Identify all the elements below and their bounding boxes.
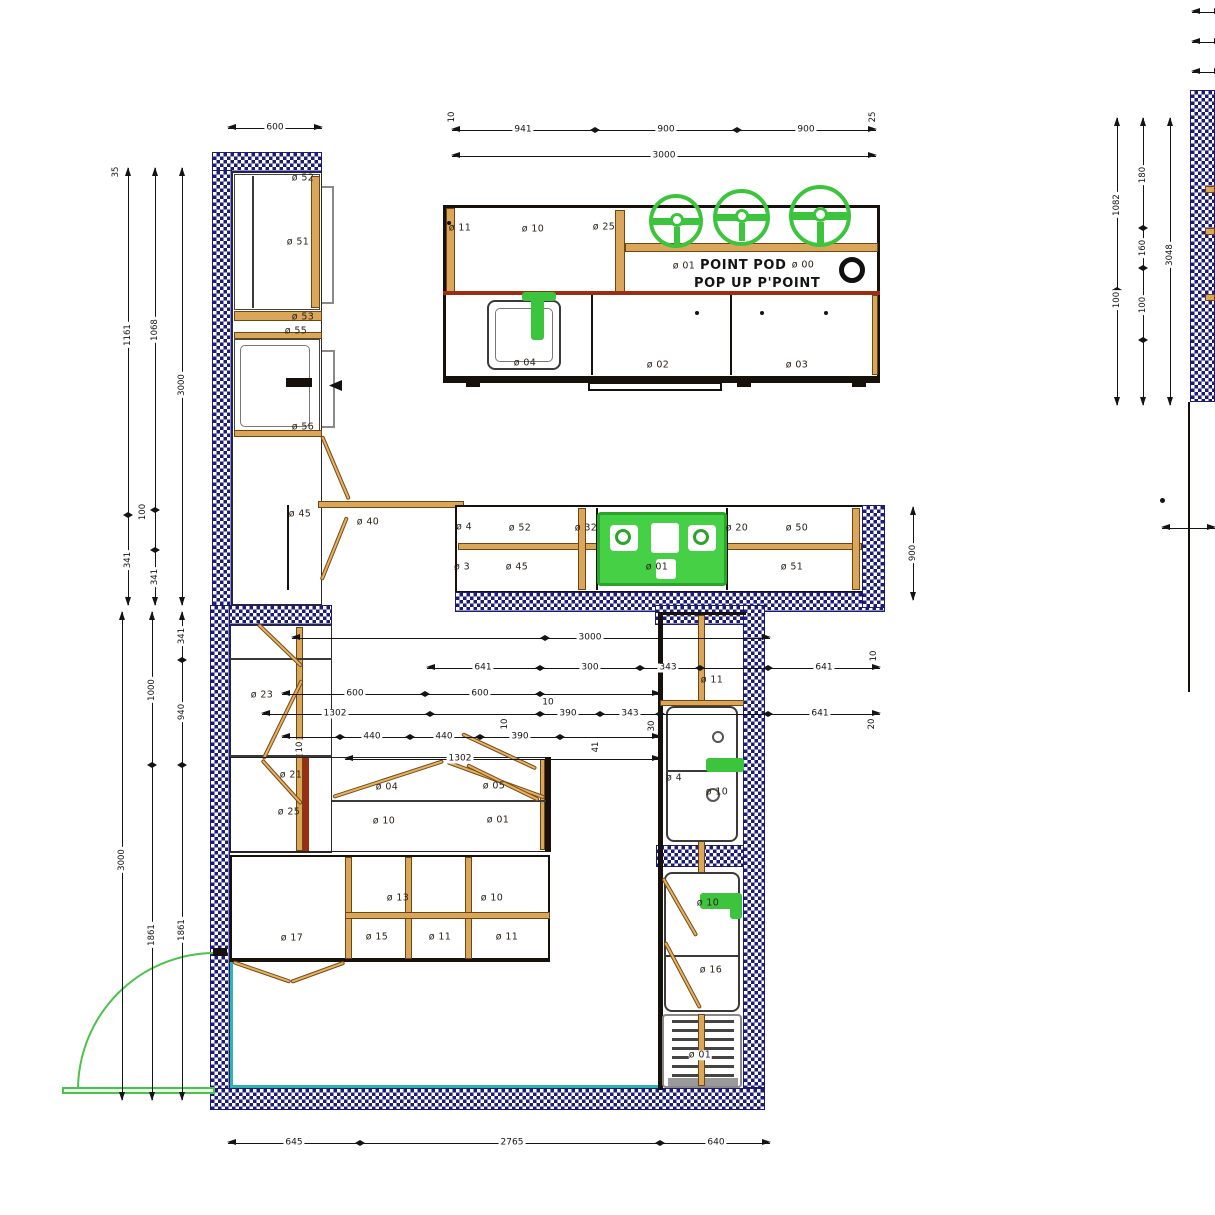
dimension-line xyxy=(182,612,183,1100)
cabinet-divider xyxy=(615,210,625,292)
cabinet-label: ø 11 xyxy=(496,932,519,942)
dim-label: 645 xyxy=(283,1139,304,1148)
cabinet-shelf-band xyxy=(234,332,322,339)
dimension-line xyxy=(292,638,770,639)
hatched-wall xyxy=(1190,90,1215,402)
dim-label: 300 xyxy=(579,664,600,673)
cabinet-label: ø 10 xyxy=(373,816,396,826)
dim-label: 641 xyxy=(813,664,834,673)
cabinet-label: ø 17 xyxy=(281,933,304,943)
dim-label: 343 xyxy=(619,710,640,719)
cabinet-label: ø 4 xyxy=(456,522,472,532)
faucet-icon xyxy=(531,292,544,340)
cabinet-label: ø 11 xyxy=(449,223,472,233)
dim-tick xyxy=(147,762,157,768)
dimension-line xyxy=(1192,42,1215,43)
cabinet-label: ø 56 xyxy=(292,422,315,432)
wall-finish-line xyxy=(230,948,233,1088)
dim-label: 41 xyxy=(592,740,601,755)
dim-label: 390 xyxy=(557,710,578,719)
dim-label: 641 xyxy=(809,710,830,719)
cabinet-door-line xyxy=(252,176,254,308)
dim-label: 30 xyxy=(648,719,657,734)
dim-label: 10 xyxy=(296,740,305,755)
dim-label: 10 xyxy=(870,649,879,664)
dim-label: 25 xyxy=(869,110,878,125)
cabinet-label: ø 25 xyxy=(593,222,616,232)
cabinet-label: ø 3 xyxy=(454,562,470,572)
dim-tick xyxy=(535,711,545,717)
counter-edge-line xyxy=(443,291,880,295)
cabinet-side-panel xyxy=(872,295,878,375)
dim-label: 600 xyxy=(264,124,285,133)
dim-label: 3000 xyxy=(651,152,678,161)
hatched-wall xyxy=(743,605,765,1088)
dim-label: 160 xyxy=(1139,238,1148,258)
cad-kitchen-plan-sheet: 941 900 900 10 25 3000 POINT POD PO xyxy=(0,0,1215,1215)
sink-divider-line xyxy=(666,955,738,957)
dim-tick xyxy=(555,734,565,740)
cabinet-label: ø 50 xyxy=(786,523,809,533)
cabinet-label: ø 02 xyxy=(647,360,670,370)
faucet-icon xyxy=(706,758,744,772)
counter-front-rail xyxy=(318,501,464,508)
door-swing-arc xyxy=(77,952,215,1090)
door-bracket xyxy=(322,186,334,304)
dim-label: 1861 xyxy=(148,922,157,948)
cabinet-label: ø 52 xyxy=(292,173,315,183)
dim-tick xyxy=(150,547,160,553)
dim-label: 341 xyxy=(124,550,133,570)
cabinet-label: ø 51 xyxy=(287,237,310,247)
dim-label: 20 xyxy=(868,717,877,732)
cabinet-label: ø 04 xyxy=(514,358,537,368)
dim-label: 341 xyxy=(178,626,187,646)
dim-label: 10 xyxy=(540,699,555,708)
cabinet-label: ø 23 xyxy=(251,690,274,700)
annotation-point-pod: POINT POD xyxy=(700,258,786,273)
cabinet-shelf-band xyxy=(345,912,550,919)
base-cabinet-outline xyxy=(230,855,550,962)
door-swing-line xyxy=(320,435,351,500)
dim-tick xyxy=(420,691,430,697)
cabinet-label: ø 53 xyxy=(292,312,315,322)
dim-label: 440 xyxy=(361,733,382,742)
cabinet-shelf-band xyxy=(1205,228,1215,235)
dim-label: 10 xyxy=(448,110,457,125)
dim-label: 180 xyxy=(1139,165,1148,185)
cabinet-label: ø 11 xyxy=(429,932,452,942)
dim-label: 940 xyxy=(178,702,187,722)
dim-tick xyxy=(177,762,187,768)
cabinet-label: ø 10 xyxy=(481,893,504,903)
cabinet-divider-line xyxy=(591,295,593,375)
dim-tick xyxy=(123,512,133,518)
dimension-line xyxy=(345,759,660,760)
dim-tick xyxy=(177,657,187,663)
sink-basin xyxy=(495,308,553,362)
counter-outline xyxy=(230,757,550,852)
faucet-icon xyxy=(730,905,742,919)
annotation-pop-up: POP UP P'POINT xyxy=(694,276,820,291)
hatched-wall xyxy=(210,1088,765,1110)
dim-label: 600 xyxy=(469,690,490,699)
gas-burner-icon xyxy=(713,189,770,246)
cabinet-label: ø 55 xyxy=(285,326,308,336)
cabinet-divider xyxy=(345,857,352,959)
door-swing-line xyxy=(232,960,291,984)
dimension-line xyxy=(128,168,129,605)
dim-label: 440 xyxy=(433,733,454,742)
cabinet-side-panel xyxy=(311,176,320,308)
dim-tick xyxy=(425,711,435,717)
dim-tick xyxy=(540,635,550,641)
hatched-wall xyxy=(212,152,322,172)
cabinet-label: ø 51 xyxy=(781,562,804,572)
dimension-line xyxy=(1117,118,1118,405)
cabinet-label: ø 16 xyxy=(700,965,723,975)
dim-label: 1068 xyxy=(151,317,160,343)
cooktop xyxy=(597,512,727,586)
plinth-recess xyxy=(588,382,722,391)
dimension-line xyxy=(1192,72,1215,73)
dim-label: 10 xyxy=(501,717,510,732)
dim-tick xyxy=(1138,337,1148,343)
dimension-line xyxy=(1162,528,1215,529)
dim-label: 600 xyxy=(344,690,365,699)
dim-tick xyxy=(635,665,645,671)
cabinet-label: ø 4 xyxy=(666,773,682,783)
counter-mid-line xyxy=(332,800,546,802)
cabinet-label: ø 32 xyxy=(575,523,598,533)
cabinet-label: ø 11 xyxy=(701,675,724,685)
cabinet-label: ø 10 xyxy=(706,787,729,797)
dim-tick xyxy=(535,691,545,697)
pop-up-point-circle xyxy=(839,257,865,283)
dim-label: 3000 xyxy=(577,634,604,643)
cabinet-label: ø 04 xyxy=(376,782,399,792)
dim-tick xyxy=(655,711,665,717)
door-swing-line xyxy=(320,516,349,581)
cabinet-divider-line xyxy=(730,295,732,375)
dot xyxy=(695,311,699,315)
dim-label: 35 xyxy=(112,165,121,180)
dot xyxy=(824,311,828,315)
dim-tick xyxy=(335,734,345,740)
wall-finish-line xyxy=(230,1085,660,1088)
cabinet-label: ø 00 xyxy=(792,260,815,270)
dimension-line xyxy=(155,168,156,605)
dim-tick xyxy=(590,127,600,133)
dim-tick xyxy=(595,711,605,717)
dim-label: 3048 xyxy=(1166,242,1175,268)
dim-label: 3000 xyxy=(178,372,187,398)
sheet-border-line xyxy=(1188,402,1190,692)
cabinet-foot xyxy=(852,382,866,387)
dim-label: 640 xyxy=(705,1139,726,1148)
cabinet-label: ø 01 xyxy=(646,562,669,572)
dim-label: 100 xyxy=(139,502,148,522)
dim-label: 900 xyxy=(909,543,918,563)
cabinet-foot xyxy=(737,382,751,387)
dim-label: 900 xyxy=(655,126,676,135)
door-swing-line xyxy=(290,961,345,984)
dot xyxy=(760,311,764,315)
dim-tick xyxy=(1138,265,1148,271)
cabinet-foot xyxy=(466,382,480,387)
dim-label: 941 xyxy=(512,126,533,135)
cabinet-shelf-line xyxy=(230,658,332,660)
cabinet-divider xyxy=(578,508,586,590)
cabinet-label: ø 01 xyxy=(673,261,696,271)
cabinet-label: ø 20 xyxy=(726,523,749,533)
dim-tick xyxy=(655,1140,665,1146)
cabinet-label: ø 01 xyxy=(689,1050,712,1060)
dim-label: 2765 xyxy=(499,1139,526,1148)
dimension-line xyxy=(1143,118,1144,405)
door-leaf xyxy=(62,1087,215,1094)
dim-tick xyxy=(405,734,415,740)
cabinet-label: ø 15 xyxy=(366,932,389,942)
door-jamb xyxy=(213,948,227,956)
cabinet-label: ø 10 xyxy=(522,224,545,234)
dim-label: 900 xyxy=(795,126,816,135)
hatched-wall xyxy=(862,505,885,608)
appliance-handle xyxy=(286,378,312,387)
dim-tick xyxy=(535,665,545,671)
cabinet-shelf-band xyxy=(1205,294,1215,301)
dim-label: 100 xyxy=(1139,295,1148,315)
dot xyxy=(1160,498,1165,503)
dim-label: 341 xyxy=(151,567,160,587)
dimension-line xyxy=(1192,12,1215,13)
dim-label: 1302 xyxy=(447,755,474,764)
cabinet-label: ø 10 xyxy=(697,898,720,908)
gas-burner-icon xyxy=(649,194,703,248)
dim-label: 100 xyxy=(1113,290,1122,310)
cabinet-side-panel xyxy=(852,508,860,590)
cabinet-label: ø 13 xyxy=(387,893,410,903)
gas-burner-icon xyxy=(789,185,851,247)
dim-label: 641 xyxy=(472,664,493,673)
dim-label: 390 xyxy=(509,733,530,742)
dim-label: 343 xyxy=(657,664,678,673)
dim-tick xyxy=(355,1140,365,1146)
hatched-wall xyxy=(212,170,232,606)
dim-label: 1861 xyxy=(178,917,187,943)
dim-label: 1302 xyxy=(322,710,349,719)
dot xyxy=(447,221,451,225)
dim-tick xyxy=(150,507,160,513)
cabinet-label: ø 03 xyxy=(786,360,809,370)
dim-tick xyxy=(1138,225,1148,231)
dim-tick xyxy=(732,127,742,133)
cabinet-label: ø 40 xyxy=(357,517,380,527)
cabinet-label: ø 45 xyxy=(506,562,529,572)
cabinet-label: ø 52 xyxy=(509,523,532,533)
sink-drain xyxy=(712,731,724,743)
cabinet-divider xyxy=(465,857,472,959)
cabinet-divider xyxy=(405,857,412,959)
cabinet-label: ø 45 xyxy=(289,509,312,519)
dimension-line xyxy=(427,668,880,669)
cabinet-label: ø 05 xyxy=(483,781,506,791)
door-bracket xyxy=(322,350,335,428)
dim-label: 1161 xyxy=(124,322,133,348)
dim-label: 3000 xyxy=(118,847,127,873)
dim-label: 1000 xyxy=(148,677,157,703)
counter-end-panel xyxy=(545,757,551,852)
dim-label: 1082 xyxy=(1113,192,1122,218)
cabinet-shelf-band xyxy=(1205,186,1215,193)
cabinet-label: ø 01 xyxy=(487,815,510,825)
